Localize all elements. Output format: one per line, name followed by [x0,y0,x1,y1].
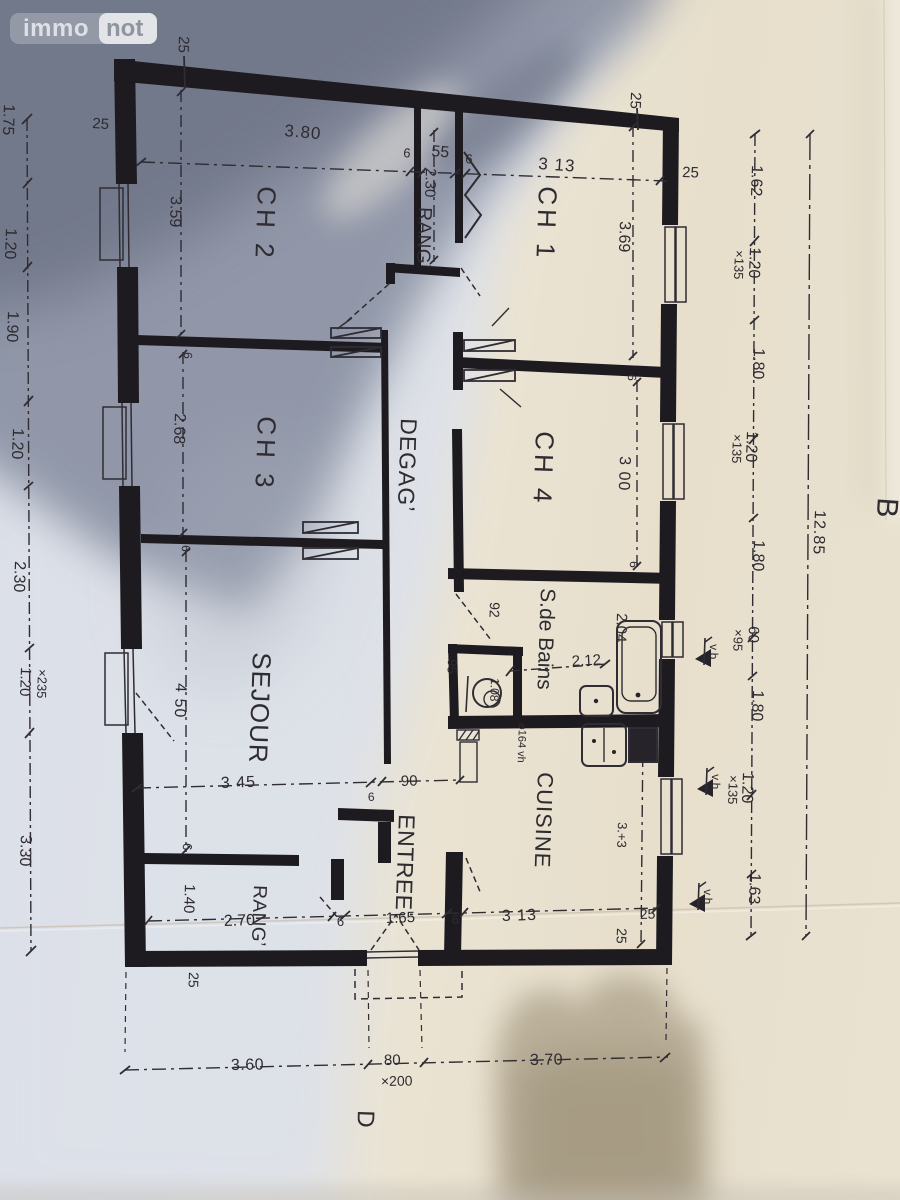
svg-text:6: 6 [368,790,375,804]
svg-text:B: B [870,497,900,519]
svg-text:1.80: 1.80 [749,540,767,572]
svg-text:CH 1: CH 1 [530,186,563,262]
svg-text:×200: ×200 [381,1072,413,1089]
svg-text:6: 6 [181,352,195,359]
svg-text:2.30: 2.30 [10,561,28,593]
svg-text:3 00: 3 00 [615,456,633,492]
svg-text:ENTREE: ENTREE [391,814,420,911]
svg-text:3.+3: 3.+3 [614,822,630,848]
svg-text:3.70: 3.70 [530,1051,563,1069]
svg-text:1.40: 1.40 [180,884,198,914]
svg-text:1.20: 1.20 [8,428,26,460]
svg-text:1.20: 1.20 [1,228,19,260]
svg-text:D: D [351,1110,379,1128]
svg-text:RANGʼ: RANGʼ [412,207,435,269]
svg-text:RANGʼ: RANGʼ [247,885,270,947]
svg-text:6: 6 [627,561,641,568]
svg-text:v.b: v.b [706,644,721,660]
svg-text:1.75: 1.75 [0,104,17,136]
svg-text:25: 25 [626,92,644,109]
svg-text:1.90: 1.90 [3,311,21,343]
svg-text:6: 6 [403,145,412,161]
svg-text:25: 25 [174,36,192,53]
svg-text:4 50: 4 50 [171,683,189,719]
svg-text:55: 55 [431,143,450,161]
svg-text:2.12: 2.12 [571,651,601,670]
svg-text:6: 6 [337,914,345,929]
svg-text:3 45: 3 45 [221,774,257,792]
svg-text:25: 25 [640,905,656,922]
svg-text:CH 4: CH 4 [527,431,560,507]
svg-text:×135: ×135 [725,775,741,805]
svg-text:25: 25 [613,928,630,944]
svg-text:CH 2: CH 2 [249,186,282,262]
svg-text:×95: ×95 [730,629,746,652]
svg-text:6: 6 [625,374,639,381]
svg-text:80: 80 [384,1052,401,1069]
svg-text:1.80: 1.80 [749,348,767,380]
svg-text:S.de Bains: S.de Bains [532,588,559,690]
svg-text:v.h: v.h [700,889,715,905]
svg-text:12.85: 12.85 [809,510,828,556]
svg-text:×235: ×235 [34,669,50,699]
svg-text:2.30: 2.30 [421,168,439,198]
svg-text:6: 6 [465,151,474,167]
svg-text:3 13: 3 13 [502,907,538,925]
svg-text:25: 25 [92,115,110,133]
svg-text:×135: ×135 [729,434,745,464]
svg-text:25: 25 [682,164,699,182]
svg-text:1.63: 1.63 [745,873,763,905]
svg-text:×135: ×135 [731,250,747,280]
svg-text:6: 6 [180,843,195,851]
svg-text:2.04: 2.04 [612,613,630,643]
svg-text:3.69: 3.69 [615,221,633,253]
svg-text:3.80: 3.80 [284,121,323,143]
svg-text:95: 95 [444,659,459,674]
svg-text:⌀164 vh: ⌀164 vh [515,723,528,763]
svg-text:3.59: 3.59 [166,196,184,228]
svg-text:v.h: v.h [708,774,723,790]
svg-text:3 13: 3 13 [538,154,576,176]
svg-text:1.65: 1.65 [386,909,416,927]
svg-text:CUISINE: CUISINE [530,772,558,869]
svg-text:6: 6 [179,545,193,552]
svg-text:92: 92 [486,602,503,618]
svg-text:2.68: 2.68 [170,413,188,445]
svg-text:CH 3: CH 3 [249,416,282,492]
svg-text:SEJOUR: SEJOUR [243,652,277,764]
svg-text:3.60: 3.60 [231,1056,264,1074]
svg-text:25: 25 [185,972,202,988]
svg-text:1.62: 1.62 [747,165,765,197]
svg-text:60: 60 [744,626,762,643]
svg-text:1.08: 1.08 [487,678,502,702]
svg-text:3.30: 3.30 [16,835,34,867]
svg-text:1.80: 1.80 [748,690,766,722]
svg-text:DEGAGʼ: DEGAGʼ [393,418,422,513]
svg-text:1.20: 1.20 [16,667,34,697]
svg-text:90: 90 [401,772,418,790]
svg-text:6: 6 [452,912,460,927]
